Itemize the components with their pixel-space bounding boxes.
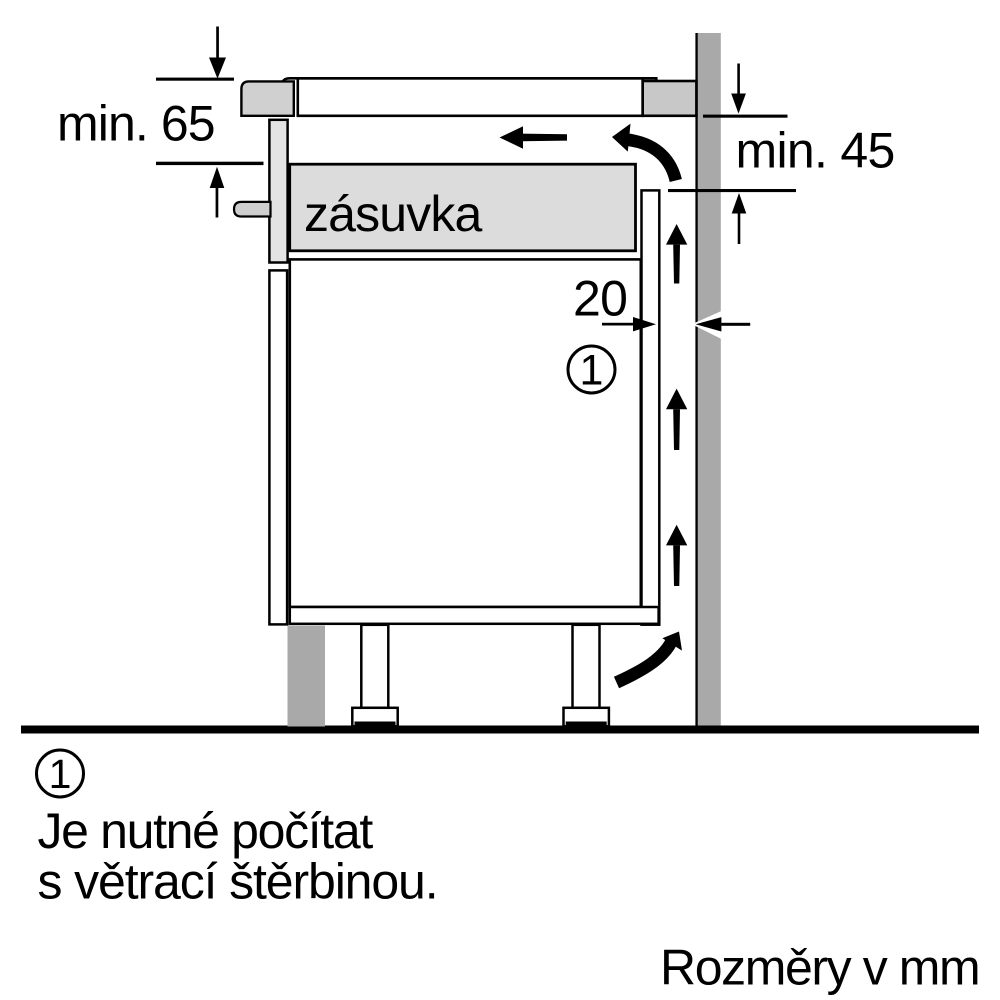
svg-text:Je nutné počítat: Je nutné počítat <box>38 803 374 859</box>
svg-text:20: 20 <box>573 271 627 327</box>
svg-text:Rozměry v mm: Rozměry v mm <box>660 940 979 996</box>
svg-text:min. 45: min. 45 <box>736 122 895 178</box>
svg-text:min. 65: min. 65 <box>57 96 215 152</box>
svg-text:s větrací štěrbinou.: s větrací štěrbinou. <box>38 854 438 910</box>
svg-text:zásuvka: zásuvka <box>304 186 483 242</box>
svg-text:1: 1 <box>49 751 72 797</box>
svg-text:1: 1 <box>580 347 604 395</box>
